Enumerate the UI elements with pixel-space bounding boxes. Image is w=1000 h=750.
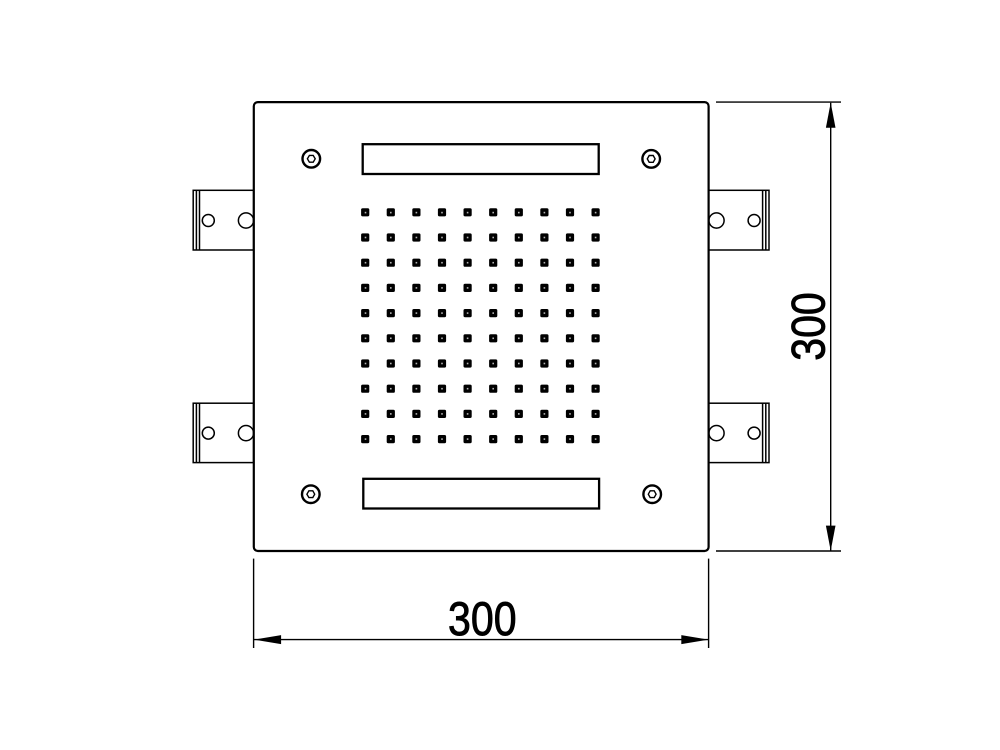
svg-text:300: 300 xyxy=(782,292,835,361)
svg-text:300: 300 xyxy=(448,592,517,645)
